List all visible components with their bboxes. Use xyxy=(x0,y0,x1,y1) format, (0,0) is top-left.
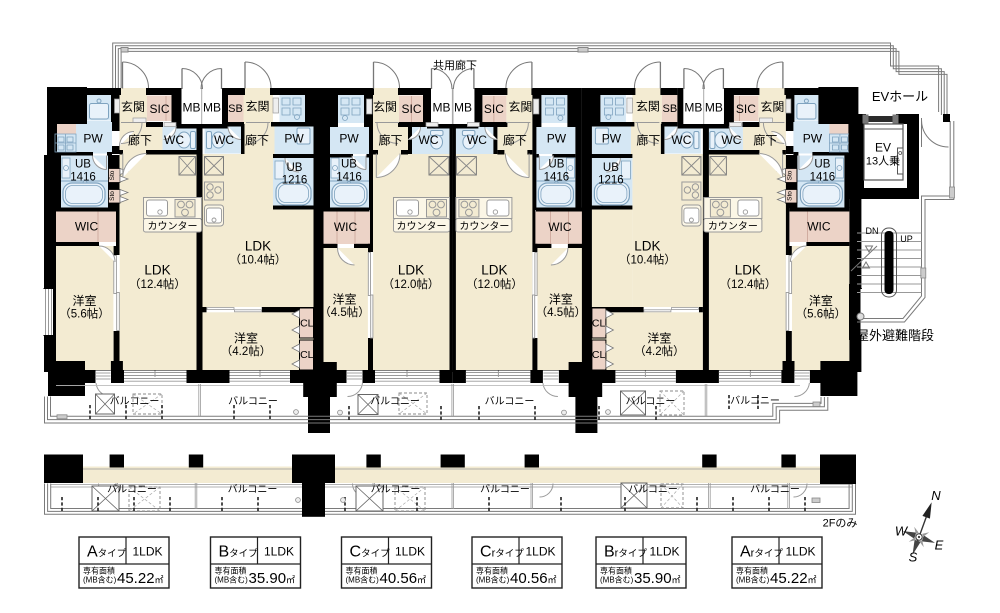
svg-text:1416: 1416 xyxy=(544,172,570,184)
svg-text:バルコニー: バルコニー xyxy=(480,484,530,496)
svg-text:廊下: 廊下 xyxy=(503,133,527,148)
svg-text:バルコニー: バルコニー xyxy=(110,396,160,408)
svg-text:WIC: WIC xyxy=(334,220,358,234)
svg-text:（4.2帖）: （4.2帖） xyxy=(634,344,685,358)
svg-text:PW: PW xyxy=(339,132,359,146)
svg-text:PW: PW xyxy=(83,132,103,146)
svg-text:専有面積: 専有面積 xyxy=(600,566,632,576)
svg-text:SIC: SIC xyxy=(401,102,421,116)
svg-text:UB: UB xyxy=(341,159,357,171)
svg-text:バルコニー: バルコニー xyxy=(228,396,278,408)
svg-text:UB: UB xyxy=(603,162,619,174)
svg-text:専有面積: 専有面積 xyxy=(83,566,115,576)
svg-text:CL: CL xyxy=(300,349,314,361)
svg-text:バルコニー: バルコニー xyxy=(750,484,800,496)
svg-text:WC: WC xyxy=(671,133,691,147)
svg-text:PW: PW xyxy=(602,132,622,146)
svg-text:S: S xyxy=(909,550,918,565)
svg-text:廊下: 廊下 xyxy=(753,133,777,148)
svg-text:（12.0帖）: （12.0帖） xyxy=(466,277,523,291)
svg-text:SIC: SIC xyxy=(484,102,504,116)
svg-text:PW: PW xyxy=(284,132,304,146)
svg-text:（12.0帖）: （12.0帖） xyxy=(383,277,440,291)
svg-text:SIC: SIC xyxy=(736,102,756,116)
svg-text:（10.4帖）: （10.4帖） xyxy=(619,253,676,267)
svg-text:バルコニー: バルコニー xyxy=(628,484,678,496)
svg-text:(MB含む): (MB含む) xyxy=(736,575,770,585)
svg-text:LDK: LDK xyxy=(144,263,170,278)
svg-text:1LDK: 1LDK xyxy=(649,545,679,559)
svg-text:EV: EV xyxy=(875,141,891,155)
svg-text:1LDK: 1LDK xyxy=(264,545,294,559)
svg-text:カウンター: カウンター xyxy=(148,220,198,232)
svg-text:バルコニー: バルコニー xyxy=(730,395,780,407)
svg-text:UP: UP xyxy=(900,234,913,244)
svg-text:廊下: 廊下 xyxy=(378,133,402,148)
svg-text:UB: UB xyxy=(814,159,830,171)
svg-text:廊下: 廊下 xyxy=(245,133,269,148)
svg-text:洋室: 洋室 xyxy=(809,293,833,308)
svg-text:（12.4帖）: （12.4帖） xyxy=(719,277,776,291)
svg-text:1LDK: 1LDK xyxy=(132,545,162,559)
svg-text:LDK: LDK xyxy=(735,263,761,278)
svg-text:MB: MB xyxy=(433,101,451,115)
svg-text:(MB含む): (MB含む) xyxy=(600,575,634,585)
svg-text:専有面積: 専有面積 xyxy=(476,566,508,576)
svg-text:Sto: Sto xyxy=(786,170,793,180)
svg-text:バルコニー: バルコニー xyxy=(626,396,676,408)
svg-text:DN: DN xyxy=(866,226,879,236)
svg-text:洋室: 洋室 xyxy=(332,292,356,307)
svg-text:Sto: Sto xyxy=(786,191,793,201)
svg-text:専有面積: 専有面積 xyxy=(346,566,378,576)
svg-text:1216: 1216 xyxy=(598,175,624,187)
svg-text:バルコニー: バルコニー xyxy=(228,484,278,496)
svg-text:廊下: 廊下 xyxy=(128,133,152,148)
svg-text:1416: 1416 xyxy=(810,172,836,184)
svg-text:専有面積: 専有面積 xyxy=(215,566,247,576)
svg-text:PW: PW xyxy=(803,132,823,146)
svg-text:屋外避難階段: 屋外避難階段 xyxy=(856,328,934,343)
svg-text:LDK: LDK xyxy=(634,239,660,254)
svg-text:バルコニー: バルコニー xyxy=(107,484,157,496)
svg-text:PW: PW xyxy=(547,132,567,146)
svg-text:CL: CL xyxy=(592,318,606,330)
svg-text:(MB含む): (MB含む) xyxy=(476,575,510,585)
svg-text:玄関: 玄関 xyxy=(245,99,269,114)
svg-text:UB: UB xyxy=(548,159,564,171)
svg-text:洋室: 洋室 xyxy=(234,331,258,346)
svg-text:バルコニー: バルコニー xyxy=(485,396,535,408)
svg-text:WC: WC xyxy=(214,133,234,147)
svg-text:UB: UB xyxy=(287,162,303,174)
svg-text:EVホール: EVホール xyxy=(872,89,928,104)
svg-text:WC: WC xyxy=(164,133,184,147)
svg-text:玄関: 玄関 xyxy=(373,99,397,114)
svg-text:(MB含む): (MB含む) xyxy=(83,575,117,585)
svg-text:(MB含む): (MB含む) xyxy=(215,575,249,585)
svg-text:カウンター: カウンター xyxy=(459,220,509,232)
svg-text:LDK: LDK xyxy=(481,263,507,278)
svg-text:共用廊下: 共用廊下 xyxy=(433,58,477,72)
svg-text:玄関: 玄関 xyxy=(508,99,532,114)
svg-text:廊下: 廊下 xyxy=(636,133,660,148)
svg-text:カウンター: カウンター xyxy=(397,220,447,232)
svg-text:13人乗: 13人乗 xyxy=(866,155,900,168)
svg-text:玄関: 玄関 xyxy=(636,99,660,114)
svg-text:1LDK: 1LDK xyxy=(525,545,555,559)
svg-text:1416: 1416 xyxy=(336,172,362,184)
svg-text:1216: 1216 xyxy=(282,175,308,187)
svg-text:WC: WC xyxy=(419,133,439,147)
svg-text:Sto: Sto xyxy=(109,170,116,180)
svg-text:SIC: SIC xyxy=(149,102,169,116)
svg-text:WC: WC xyxy=(467,133,487,147)
svg-text:LDK: LDK xyxy=(398,263,424,278)
svg-text:SB: SB xyxy=(663,103,678,115)
svg-text:バルコニー: バルコニー xyxy=(370,396,420,408)
svg-text:SB: SB xyxy=(228,103,243,115)
svg-text:バルコニー: バルコニー xyxy=(371,484,421,496)
svg-text:玄関: 玄関 xyxy=(760,99,784,114)
svg-text:WIC: WIC xyxy=(75,220,99,234)
svg-text:1LDK: 1LDK xyxy=(395,545,425,559)
svg-text:洋室: 洋室 xyxy=(72,293,96,308)
svg-text:洋室: 洋室 xyxy=(549,292,573,307)
svg-text:洋室: 洋室 xyxy=(647,331,671,346)
svg-text:1416: 1416 xyxy=(70,172,96,184)
svg-text:Sto: Sto xyxy=(109,191,116,201)
svg-text:MB: MB xyxy=(203,101,221,115)
svg-text:MB: MB xyxy=(183,101,201,115)
svg-text:MB: MB xyxy=(684,101,702,115)
svg-text:専有面積: 専有面積 xyxy=(736,566,768,576)
svg-text:（10.4帖）: （10.4帖） xyxy=(230,253,287,267)
svg-text:カウンター: カウンター xyxy=(708,220,758,232)
svg-text:1LDK: 1LDK xyxy=(785,545,815,559)
svg-text:MB: MB xyxy=(454,101,472,115)
svg-text:W: W xyxy=(895,524,909,539)
svg-text:（5.6帖）: （5.6帖） xyxy=(796,307,847,321)
svg-text:(MB含む): (MB含む) xyxy=(346,575,380,585)
svg-text:WC: WC xyxy=(721,133,741,147)
svg-text:WIC: WIC xyxy=(548,220,572,234)
svg-text:（5.6帖）: （5.6帖） xyxy=(59,307,110,321)
svg-text:MB: MB xyxy=(705,101,723,115)
svg-text:（4.5帖）: （4.5帖） xyxy=(536,305,587,319)
svg-text:WIC: WIC xyxy=(807,220,831,234)
svg-text:2Fのみ: 2Fのみ xyxy=(823,517,858,530)
svg-text:N: N xyxy=(931,488,941,503)
svg-text:CL: CL xyxy=(300,318,314,330)
svg-text:CL: CL xyxy=(592,349,606,361)
svg-text:LDK: LDK xyxy=(245,239,271,254)
svg-text:（12.4帖）: （12.4帖） xyxy=(129,277,186,291)
svg-text:玄関: 玄関 xyxy=(121,99,145,114)
svg-text:（4.2帖）: （4.2帖） xyxy=(221,344,272,358)
svg-text:E: E xyxy=(935,538,944,553)
svg-text:（4.5帖）: （4.5帖） xyxy=(319,305,370,319)
svg-text:UB: UB xyxy=(75,159,91,171)
